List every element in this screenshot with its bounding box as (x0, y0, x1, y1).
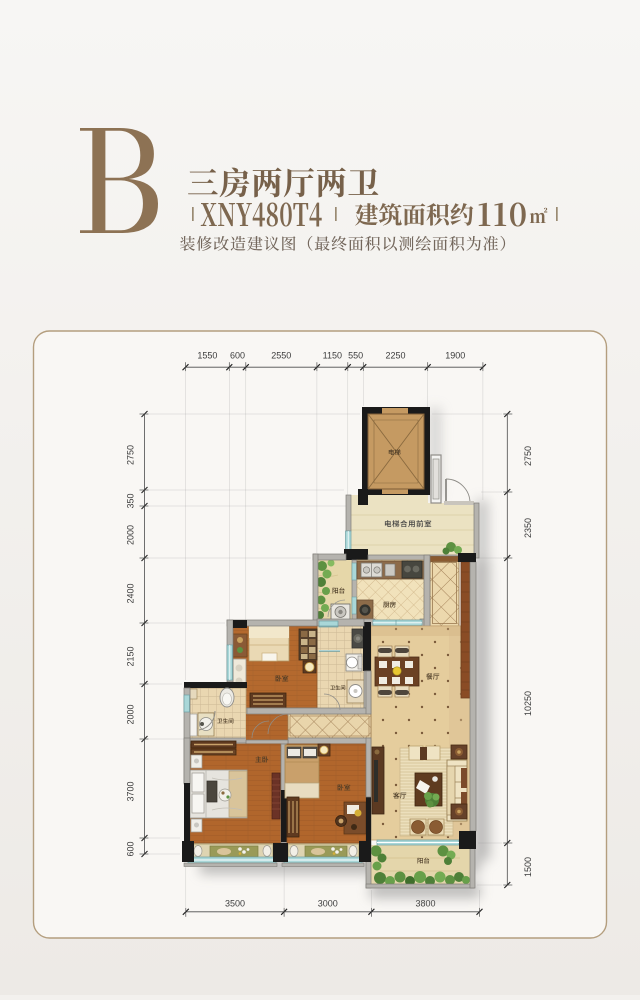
svg-text:2550: 2550 (271, 351, 291, 361)
svg-text:1150: 1150 (323, 351, 342, 361)
svg-text:1900: 1900 (445, 351, 465, 361)
svg-text:3800: 3800 (415, 899, 435, 909)
svg-text:550: 550 (348, 351, 363, 361)
svg-text:600: 600 (126, 841, 136, 856)
svg-text:3000: 3000 (318, 899, 338, 909)
svg-text:2350: 2350 (523, 518, 533, 538)
svg-text:1500: 1500 (523, 857, 533, 877)
svg-text:3700: 3700 (126, 781, 136, 801)
svg-text:350: 350 (126, 493, 136, 508)
svg-text:10250: 10250 (523, 691, 533, 716)
svg-text:2750: 2750 (126, 445, 136, 465)
svg-text:2750: 2750 (523, 446, 533, 466)
svg-text:2150: 2150 (126, 646, 136, 666)
svg-text:600: 600 (230, 351, 245, 361)
svg-text:2400: 2400 (126, 583, 136, 603)
svg-text:2250: 2250 (385, 351, 405, 361)
svg-text:2000: 2000 (126, 525, 136, 545)
svg-text:3500: 3500 (225, 899, 245, 909)
svg-text:2000: 2000 (126, 704, 136, 724)
svg-text:1550: 1550 (197, 351, 217, 361)
